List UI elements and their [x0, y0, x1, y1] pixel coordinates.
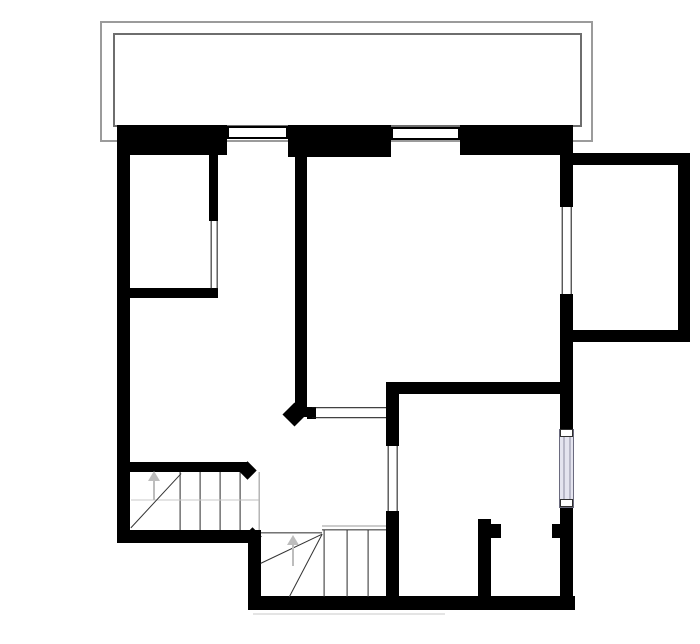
upper-stair-walk-line: [131, 500, 240, 501]
upper-stair-tread-3: [219, 472, 220, 530]
threshold-opening-line-2: [312, 417, 386, 419]
lower-stair-tread-3: [367, 530, 368, 597]
upper-stair-diagonal: [130, 474, 181, 529]
room-a-opening-line-1: [210, 221, 211, 289]
door-opening-line-2: [396, 446, 397, 511]
lower-stair-tread-2: [346, 530, 347, 597]
lower-stair-tread-1: [323, 530, 324, 597]
door-opening-line-1: [387, 446, 388, 511]
upper-stair-landing-line: [240, 500, 259, 501]
lower-stairs-up-arrow-head: [287, 535, 299, 545]
glass-inner-line-1: [563, 437, 564, 499]
lower-stair-top-gray: [322, 526, 386, 527]
bumpout-window-line-1: [561, 207, 562, 294]
ground-shadow-line: [253, 614, 445, 615]
upper-stair-tread-2: [199, 472, 200, 530]
upper-stairs-up-arrow-shaft: [153, 480, 155, 500]
room-a-opening-line-2: [216, 221, 217, 289]
glass-inner-line-2: [569, 437, 570, 499]
upper-stair-tread-4: [239, 472, 240, 530]
upper-stair-tread-1: [179, 472, 180, 530]
stairs-and-openings-layer: [0, 0, 700, 644]
threshold-opening-line-1: [312, 407, 386, 409]
upper-stairs-up-arrow-head: [148, 471, 160, 481]
winder-top-line: [261, 532, 322, 533]
upper-stair-edge: [258, 472, 259, 530]
floor-plan-canvas: [0, 0, 700, 644]
lower-stairs-up-arrow-shaft: [292, 544, 294, 566]
lower-stair-top-black: [322, 529, 386, 530]
bumpout-window-line-2: [570, 207, 571, 294]
